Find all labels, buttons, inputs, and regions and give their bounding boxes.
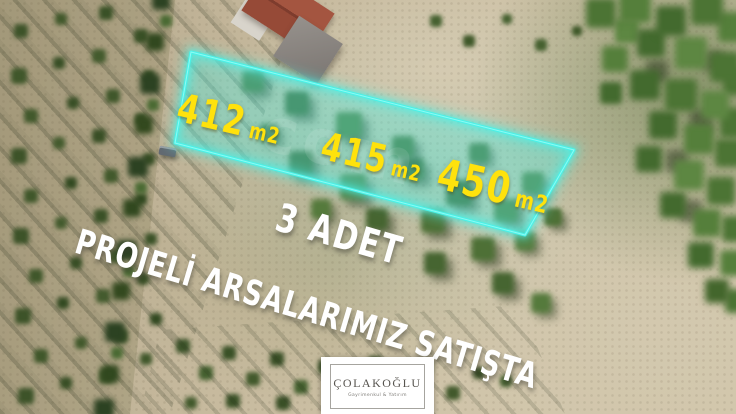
area-unit: m2 bbox=[512, 185, 551, 219]
logo-frame: ÇOLAKOĞLU Gayrimenkul & Yatırım bbox=[330, 364, 425, 409]
area-unit: m2 bbox=[389, 157, 424, 187]
logo-subtitle: Gayrimenkul & Yatırım bbox=[348, 393, 407, 398]
area-unit: m2 bbox=[247, 117, 283, 150]
agency-logo-plate: ÇOLAKOĞLU Gayrimenkul & Yatırım bbox=[321, 357, 434, 414]
listing-photo: com 412m2 415m2 450m2 3 ADET PROJELİ ARS… bbox=[0, 0, 736, 414]
logo-title: ÇOLAKOĞLU bbox=[333, 376, 421, 391]
parcel-boundary-highlight bbox=[0, 0, 736, 414]
